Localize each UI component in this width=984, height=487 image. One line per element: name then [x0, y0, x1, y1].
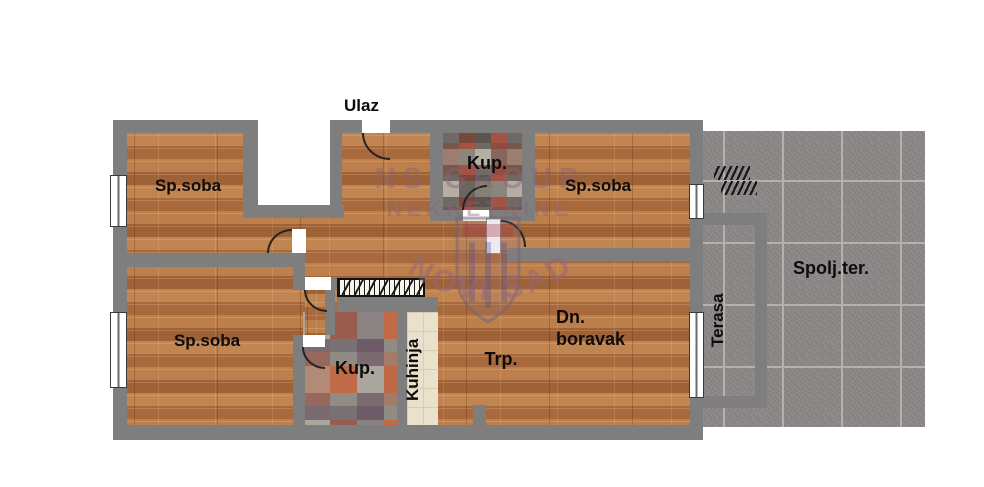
bedroom2-wall-left: [522, 133, 535, 221]
entrance-door-opening: [362, 118, 390, 133]
notch-wall-right: [330, 120, 342, 205]
wall-left: [113, 120, 127, 440]
room-label-sp-soba-top-right: Sp.soba: [548, 177, 648, 196]
bedroom1-door-opening: [292, 229, 306, 253]
room-label-dn-line1: Dn.: [556, 306, 666, 328]
terrace-wall-bottom: [700, 396, 767, 408]
bathroom-top-wall-bottom-a: [430, 210, 463, 221]
bathroom-top-wall-left: [430, 133, 443, 210]
room-label-spolj-ter: Spolj.ter.: [778, 259, 884, 279]
stairs-hatch-symbol: [714, 166, 750, 180]
bathroom2-kitchen-wall-top: [337, 297, 438, 312]
terrace-wall-right: [755, 213, 767, 408]
room-label-sp-soba-bottom-left: Sp.soba: [155, 332, 259, 351]
room-label-kup-top: Kup.: [455, 154, 519, 174]
bedroom2-window: [689, 184, 704, 219]
room-label-dnevni-boravak: Dn. boravak: [556, 306, 666, 350]
closet-hatch-symbol: [337, 278, 425, 297]
entrance-label: Ulaz: [344, 97, 404, 116]
livingroom-terrace-window: [689, 312, 704, 398]
wall-bottom: [113, 425, 703, 440]
room-label-sp-soba-top-left: Sp.soba: [138, 177, 238, 196]
hall-door-leaf: [486, 218, 501, 254]
floor-plan: NS GROUP NEKRETNINE NOVI SAD Ulaz Sp.sob…: [0, 0, 984, 487]
bedroom3-window: [110, 312, 127, 388]
room-label-kuhinja: Kuhinja: [404, 322, 440, 418]
livingroom-wall-top: [508, 248, 703, 261]
bedroom1-window: [110, 175, 127, 227]
room-label-terasa: Terasa: [709, 280, 747, 360]
bedroom1-wall-right: [243, 133, 257, 217]
room-label-kup-bottom: Kup.: [323, 359, 387, 379]
room-label-trp: Trp.: [474, 350, 528, 370]
stairs-hatch-symbol: [721, 181, 757, 195]
bedroom1-wall-bottom: [113, 253, 305, 267]
room-label-dn-line2: boravak: [556, 328, 666, 350]
notch-wall-bottom: [245, 205, 344, 218]
vestibule-door-opening: [305, 277, 331, 290]
wall-top-left: [113, 120, 258, 133]
bathroom-bottom-door-opening: [303, 335, 325, 347]
kitchen-wall-stub: [473, 405, 486, 425]
building-notch: [258, 118, 330, 205]
corridor-wall-stub-left: [293, 253, 305, 290]
